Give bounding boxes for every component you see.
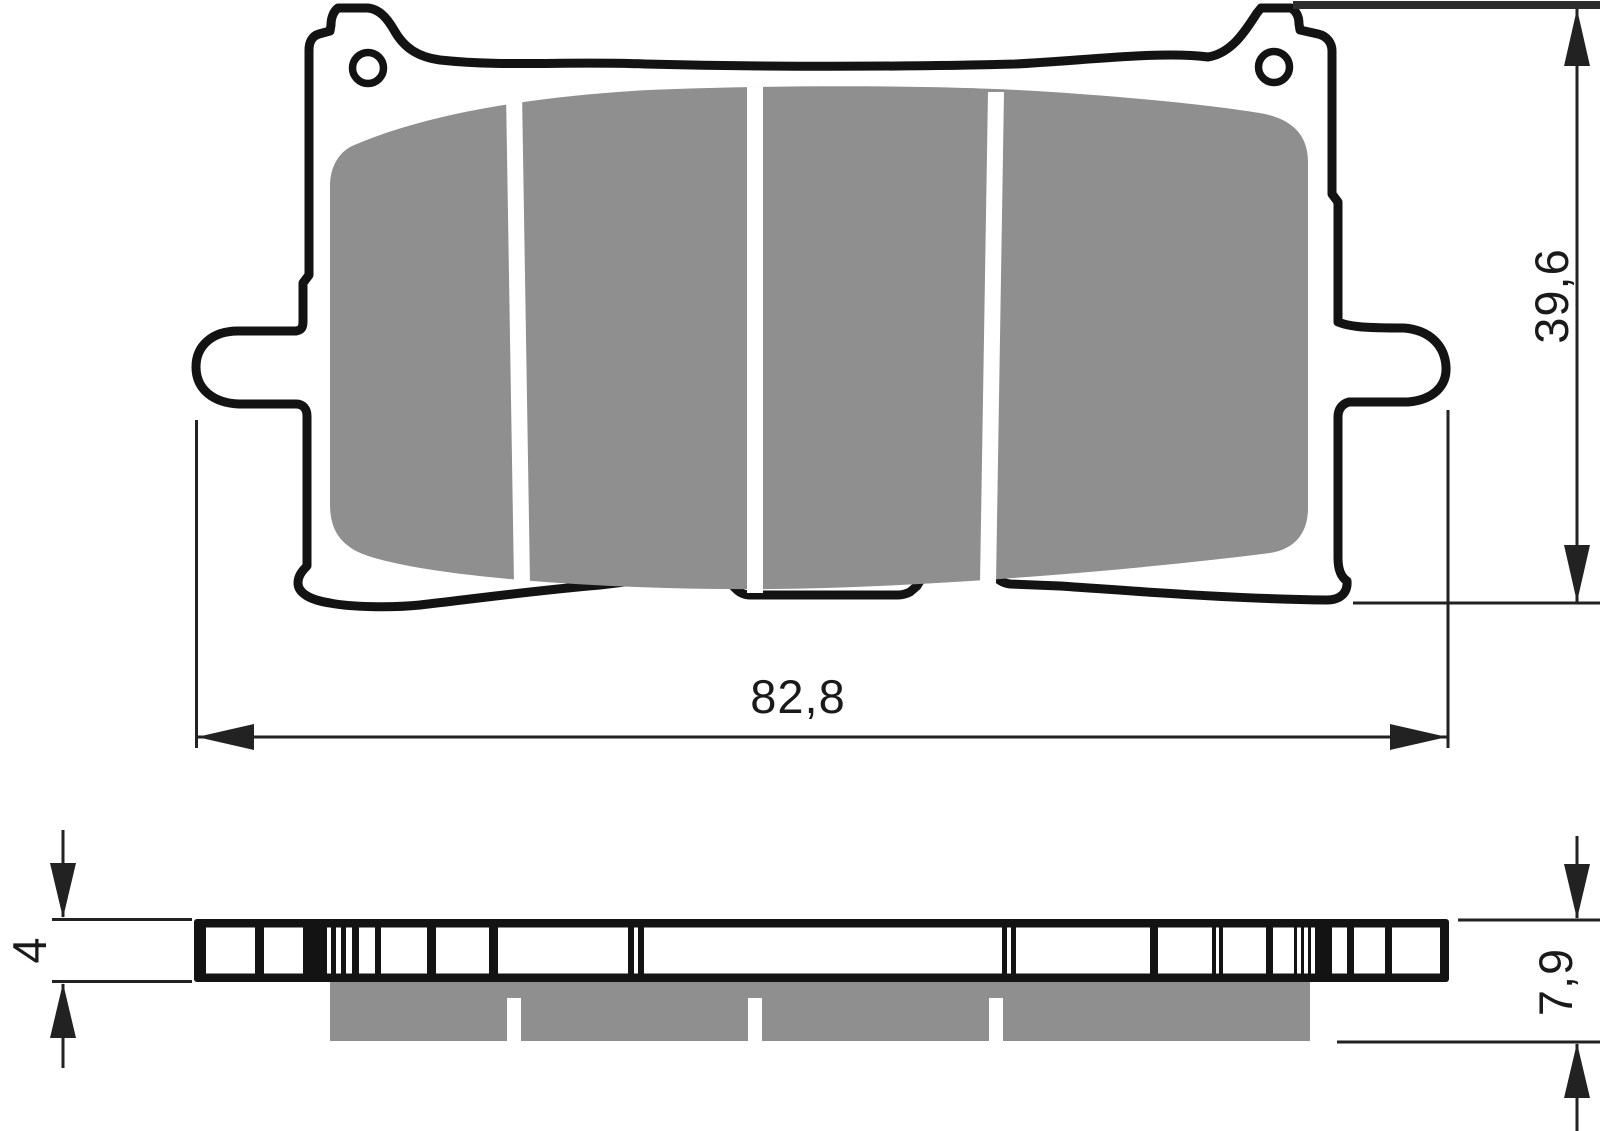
side-plate-segment	[1311, 928, 1315, 974]
width-arrow-left-icon	[197, 724, 254, 750]
height-extension-bar-top	[1293, 1, 1600, 9]
side-plate-segment	[1304, 928, 1308, 974]
side-plate-segment	[346, 928, 352, 974]
side-plate-segment	[1007, 928, 1011, 974]
side-friction-groove	[507, 998, 521, 1041]
side-friction-material	[330, 982, 1310, 1041]
dimension-backplate-thickness: 4	[3, 830, 192, 1068]
height-arrow-bottom-icon	[1564, 545, 1590, 602]
mount-hole-left	[353, 53, 384, 84]
technical-drawing-page: 82,8 39,6 4 7,9	[0, 0, 1600, 1131]
side-plate-segment	[1158, 928, 1212, 974]
height-arrow-top-icon	[1564, 9, 1590, 66]
total-arrow-down-icon	[1564, 864, 1590, 919]
side-plate-segment	[644, 928, 1002, 974]
total-dimension-label: 7,9	[1529, 948, 1582, 1016]
side-plate-white-segments	[206, 928, 1440, 974]
width-dimension-label: 82,8	[750, 670, 845, 723]
friction-divider	[747, 87, 763, 593]
mount-hole-right	[1259, 52, 1290, 83]
friction-surface	[330, 86, 1308, 589]
side-plate-segment	[1216, 928, 1219, 974]
side-friction-groove	[989, 998, 1003, 1041]
thickness-dimension-label: 4	[3, 936, 56, 963]
height-dimension-label: 39,6	[1525, 248, 1578, 343]
brake-pad-drawing: 82,8 39,6 4 7,9	[0, 0, 1600, 1131]
thickness-arrow-down-icon	[50, 863, 76, 918]
side-friction-groove	[748, 998, 762, 1041]
side-plate-segment	[1273, 928, 1294, 974]
side-plate-segment	[498, 928, 628, 974]
side-view	[194, 919, 1449, 1041]
front-view	[196, 8, 1446, 607]
side-plate-segment	[206, 928, 255, 974]
side-plate-segment	[327, 928, 331, 974]
side-plate-segment	[1332, 928, 1347, 974]
width-arrow-right-icon	[1390, 724, 1447, 750]
side-plate-segment	[1297, 928, 1301, 974]
side-plate-segment	[381, 928, 427, 974]
side-plate-segment	[359, 928, 375, 974]
side-plate-segment	[1223, 928, 1266, 974]
side-plate-segment	[336, 928, 341, 974]
side-plate-segment	[436, 928, 489, 974]
dimension-total-thickness: 7,9	[1337, 836, 1600, 1131]
side-plate-segment	[264, 928, 303, 974]
side-plate-segment	[1016, 928, 1150, 974]
side-plate-segment	[1392, 928, 1440, 974]
thickness-arrow-up-icon	[50, 983, 76, 1038]
total-arrow-up-icon	[1564, 1043, 1590, 1098]
side-plate-segment	[634, 928, 638, 974]
side-plate-segment	[1354, 928, 1385, 974]
